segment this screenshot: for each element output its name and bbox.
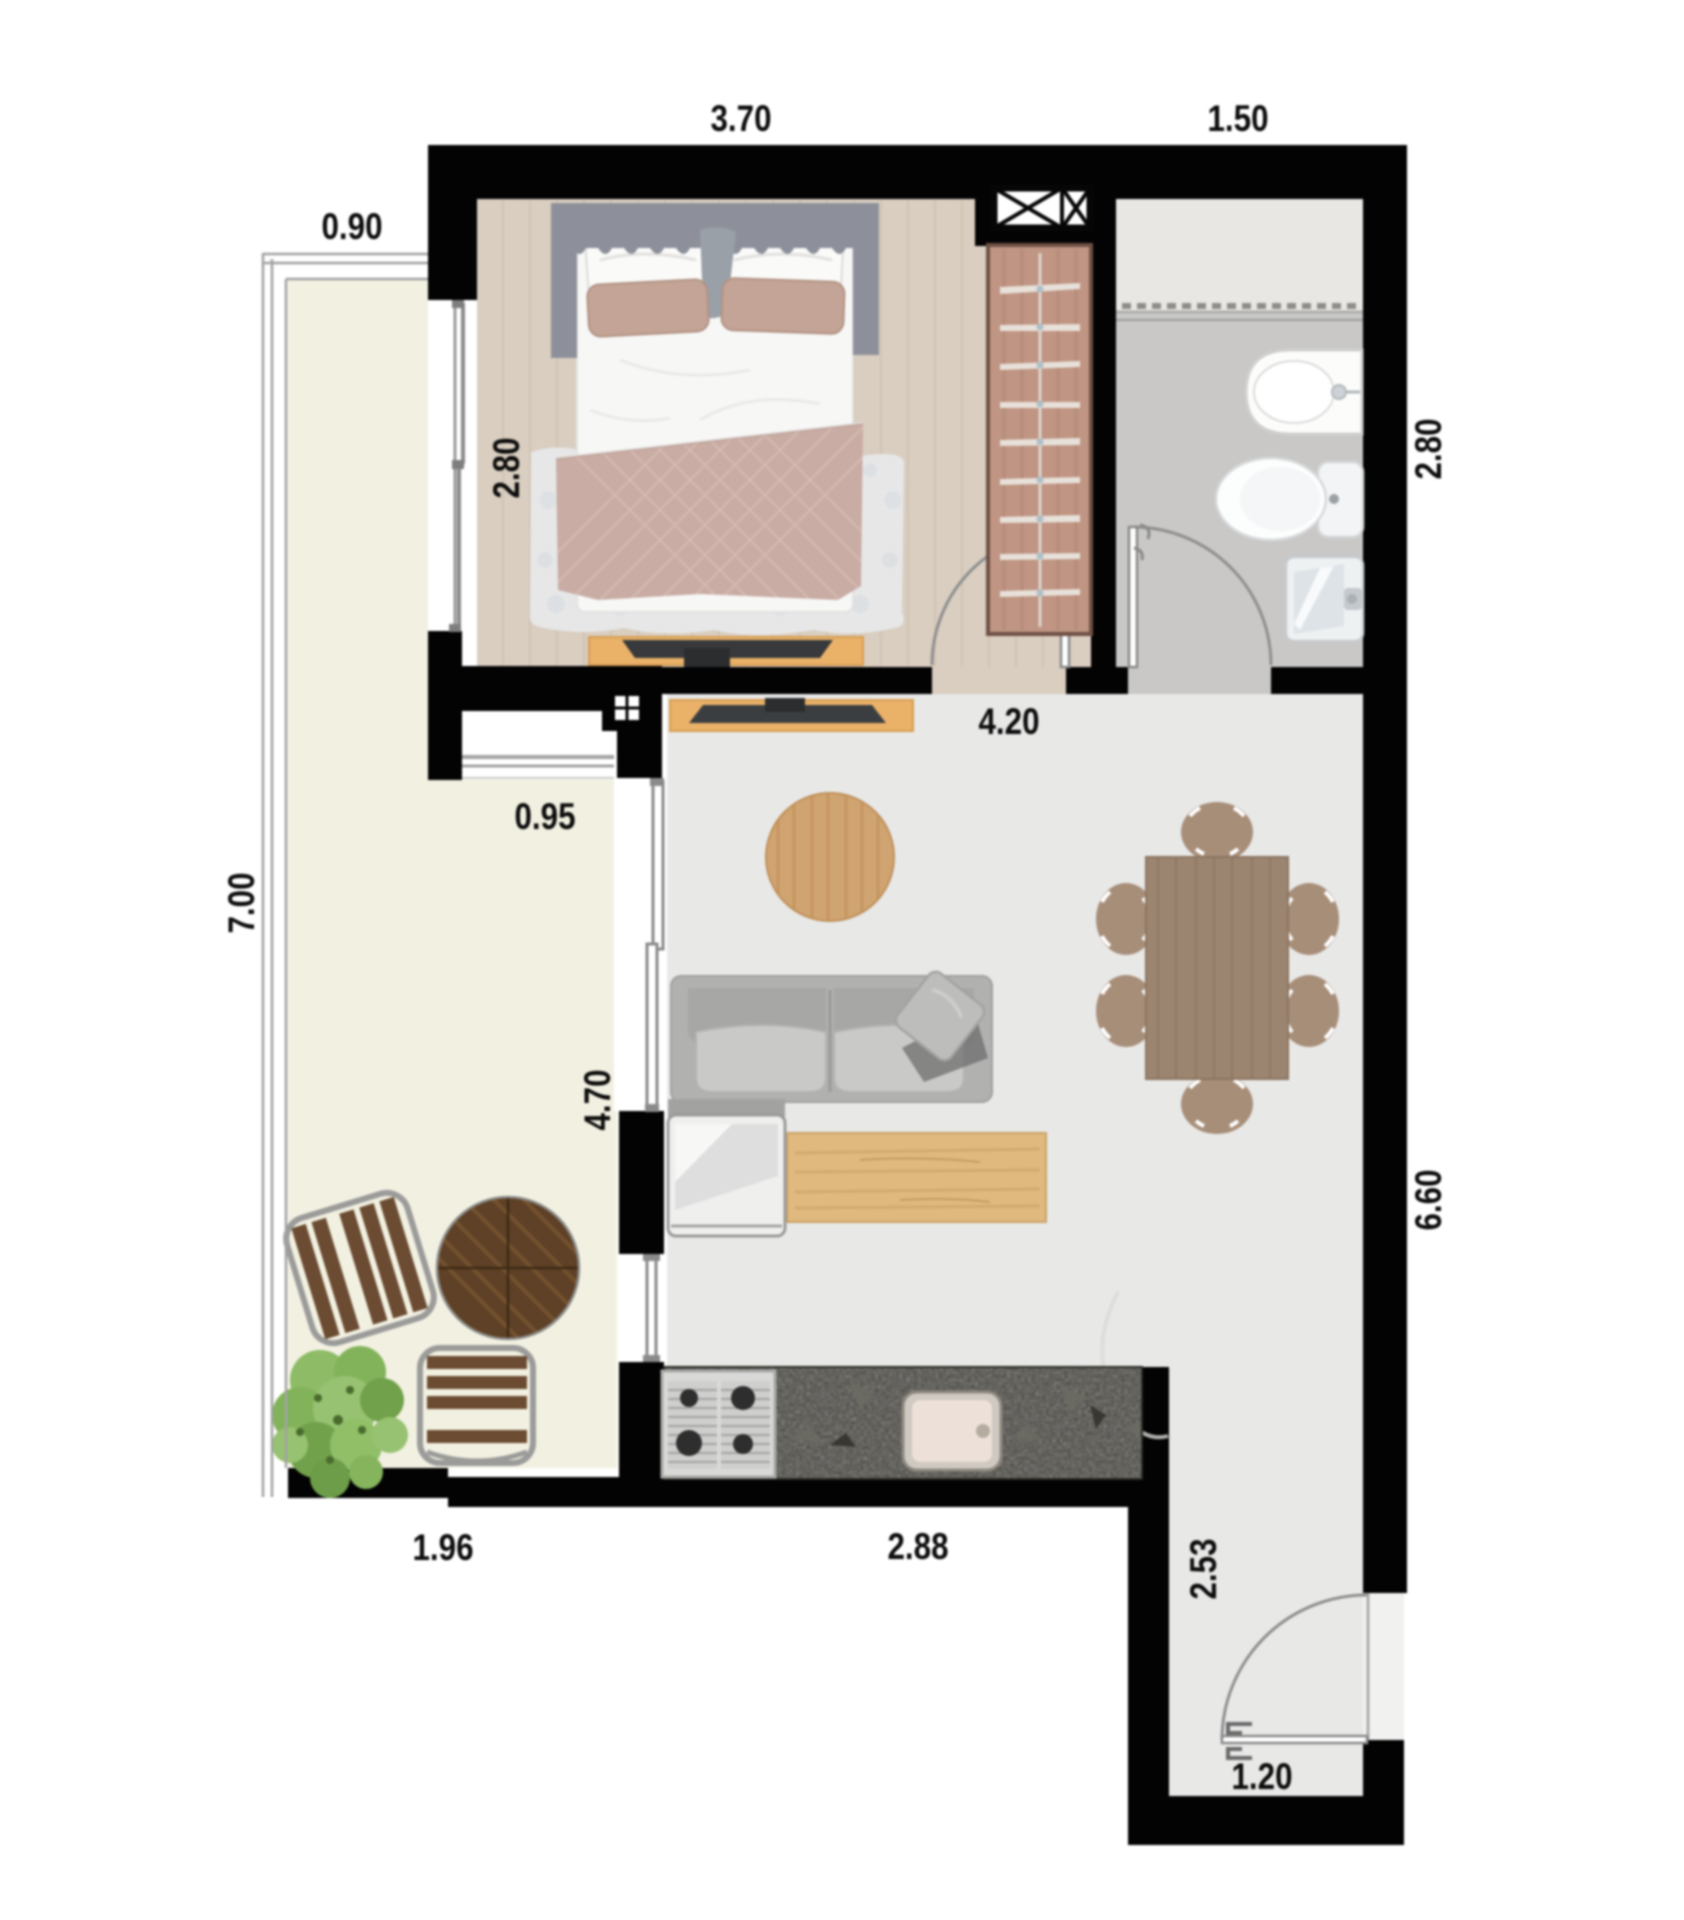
svg-text:1.20: 1.20 — [1232, 1756, 1293, 1797]
svg-text:7.00: 7.00 — [221, 873, 262, 934]
svg-text:0.90: 0.90 — [322, 206, 383, 247]
svg-text:2.80: 2.80 — [486, 438, 527, 499]
svg-text:6.60: 6.60 — [1408, 1170, 1449, 1231]
svg-text:1.96: 1.96 — [413, 1527, 474, 1568]
svg-text:0.95: 0.95 — [515, 796, 576, 837]
svg-text:1.50: 1.50 — [1208, 98, 1269, 139]
svg-text:3.70: 3.70 — [711, 98, 772, 139]
svg-text:2.88: 2.88 — [888, 1526, 949, 1567]
svg-text:2.53: 2.53 — [1183, 1539, 1224, 1600]
svg-text:2.80: 2.80 — [1408, 419, 1449, 480]
svg-text:4.20: 4.20 — [979, 701, 1040, 742]
svg-text:4.70: 4.70 — [577, 1070, 618, 1131]
